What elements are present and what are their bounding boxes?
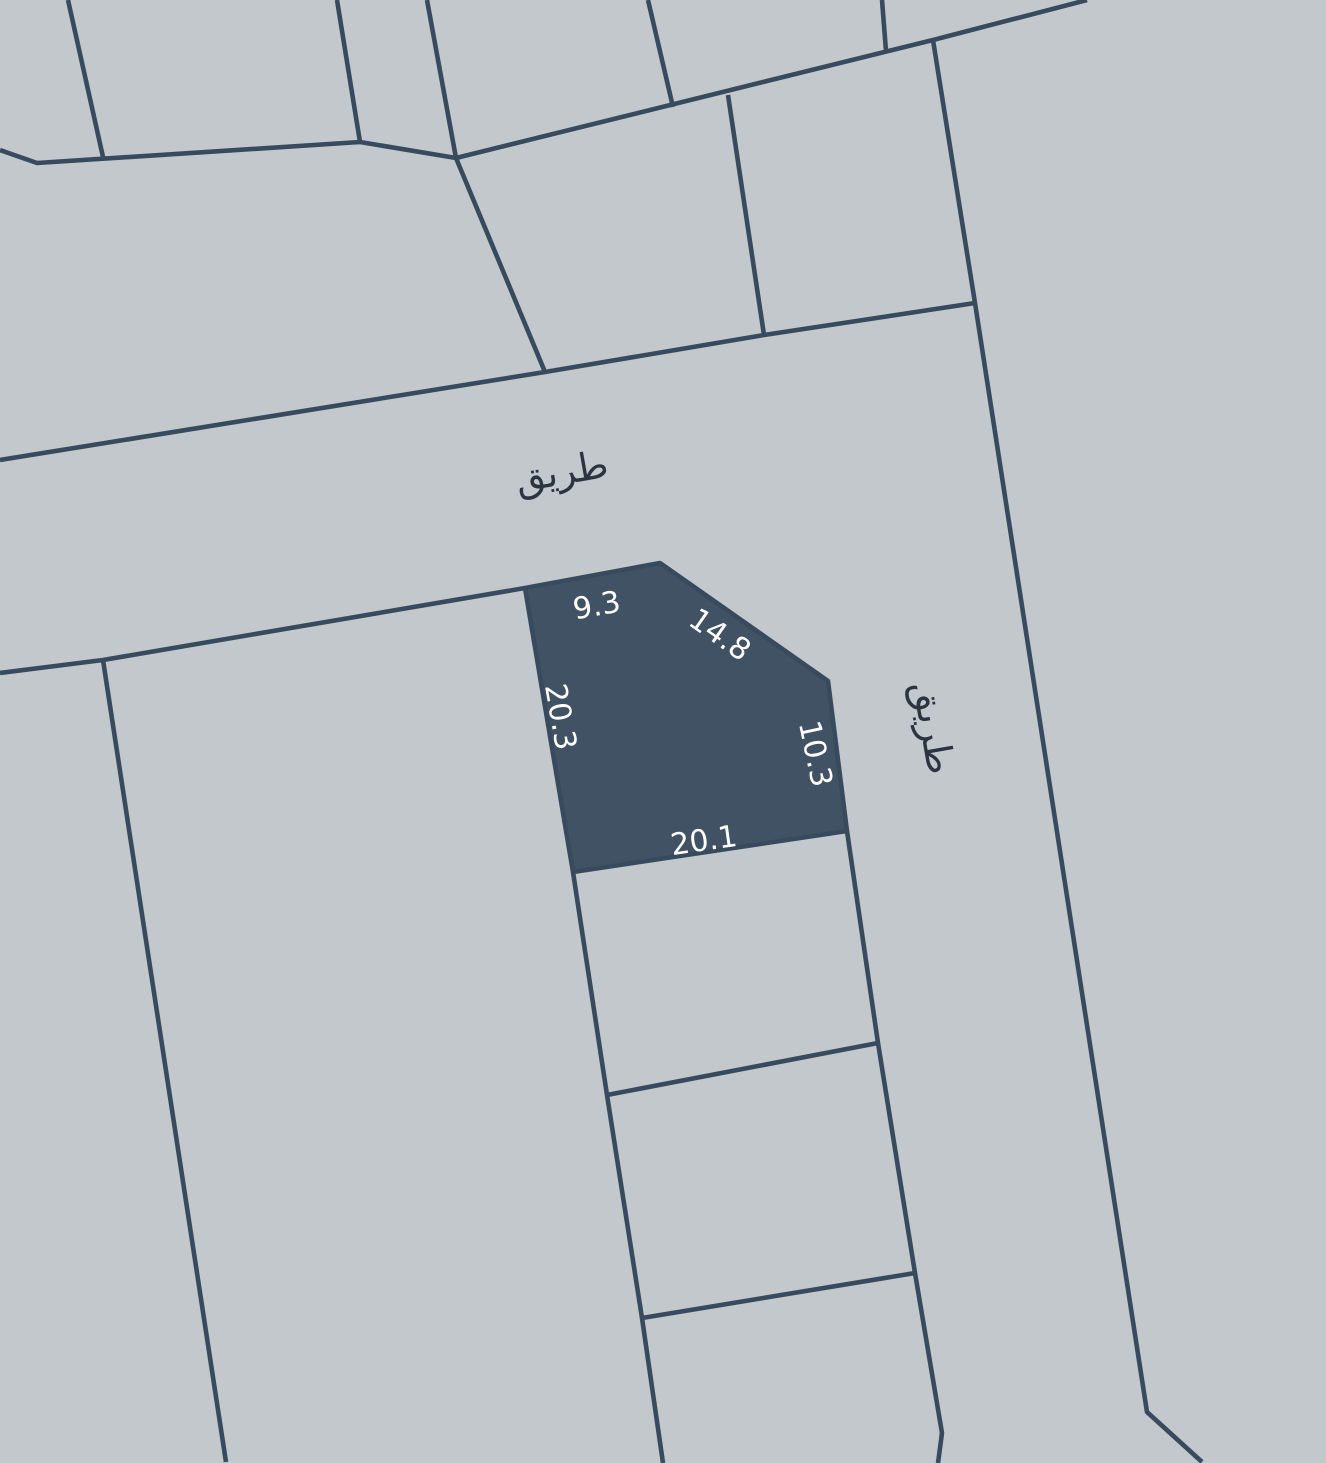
map-canvas[interactable]: طريق طريق 9.3 14.8 20.3 10.3 20.1 (0, 0, 1326, 1463)
cadastral-parcel-map[interactable]: طريق طريق 9.3 14.8 20.3 10.3 20.1 (0, 0, 1326, 1463)
